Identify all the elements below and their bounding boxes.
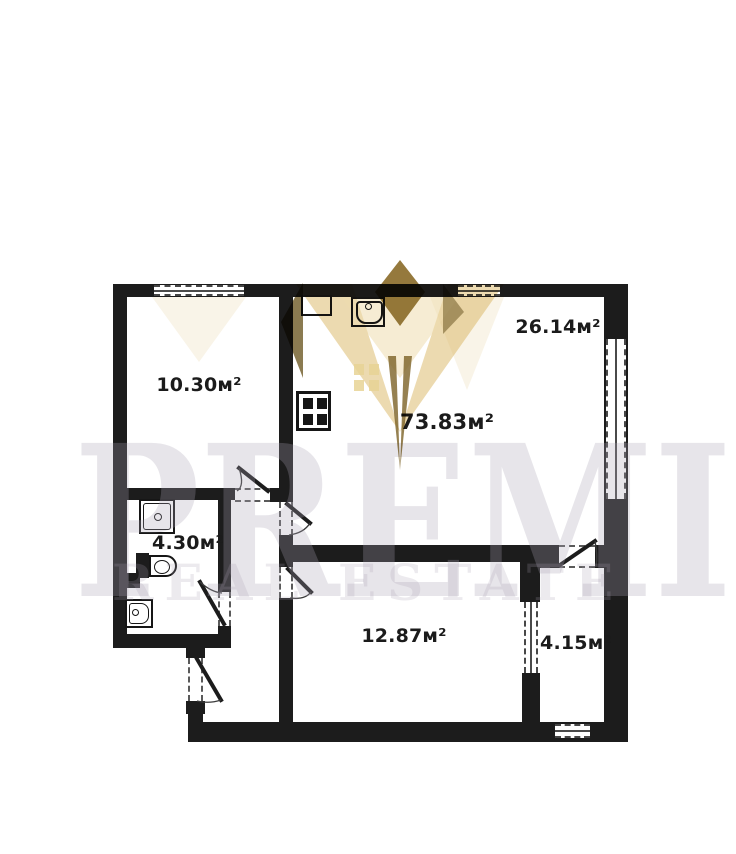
window-cap bbox=[604, 330, 628, 339]
window-balcony-bottom bbox=[555, 724, 590, 738]
room-area-label-balcony: 4.15м² bbox=[540, 632, 612, 654]
wall-bedroom2-top bbox=[292, 545, 543, 562]
window-cap bbox=[604, 499, 628, 508]
window-cap bbox=[450, 285, 458, 296]
shower-tray-icon bbox=[139, 499, 175, 534]
room-area-label-bedroom2: 12.87м² bbox=[361, 625, 446, 647]
wall-balcony-door-left bbox=[540, 545, 559, 568]
window-cap bbox=[244, 285, 252, 296]
door-opening-bathroom bbox=[218, 592, 231, 626]
kitchen-sink-icon bbox=[351, 297, 385, 327]
toilet-tank bbox=[136, 553, 149, 578]
wall-bedroom1-right bbox=[279, 284, 293, 502]
floor-plan-image: PREMIER REAL ESTATE bbox=[0, 0, 736, 854]
room-area-label-bathroom: 4.30м² bbox=[152, 532, 224, 554]
wall-bedroom1-bottom-right bbox=[270, 488, 279, 502]
wall-bathroom-right-low bbox=[218, 626, 231, 648]
wall-hall-mid bbox=[279, 535, 293, 567]
room-area-label-livingroom: 26.14м² bbox=[515, 316, 600, 338]
door-opening-livingroom bbox=[279, 502, 293, 535]
door-opening-bedroom2 bbox=[279, 567, 293, 598]
vent-shaft-box bbox=[301, 295, 332, 316]
wall-balcony-left-top bbox=[520, 545, 540, 602]
wall-balcony-left-low bbox=[522, 673, 540, 722]
toilet-icon bbox=[149, 555, 177, 577]
wall-balcony-door-right bbox=[595, 545, 604, 568]
room-area-label-bedroom1: 10.30м² bbox=[156, 374, 241, 396]
door-opening-bedroom1 bbox=[235, 488, 270, 502]
window-livingroom-right bbox=[606, 339, 626, 499]
room-area-label-total: 73.83м² bbox=[400, 410, 494, 434]
window-cap bbox=[500, 285, 508, 296]
door-opening-balcony bbox=[559, 545, 595, 568]
window-bedroom2-balcony bbox=[524, 602, 538, 673]
wall-left bbox=[113, 284, 127, 648]
window-livingroom-top bbox=[458, 285, 500, 296]
door-opening-entry bbox=[188, 658, 203, 701]
window-bedroom1 bbox=[154, 285, 244, 296]
stove-icon bbox=[296, 391, 331, 431]
washbasin-icon bbox=[125, 599, 153, 628]
wall-bathroom-bottom bbox=[113, 634, 225, 648]
window-cap bbox=[146, 285, 154, 296]
wall-entry-jamb-top bbox=[186, 648, 205, 658]
wall-hall-low bbox=[279, 598, 293, 742]
door-arc bbox=[290, 592, 311, 598]
